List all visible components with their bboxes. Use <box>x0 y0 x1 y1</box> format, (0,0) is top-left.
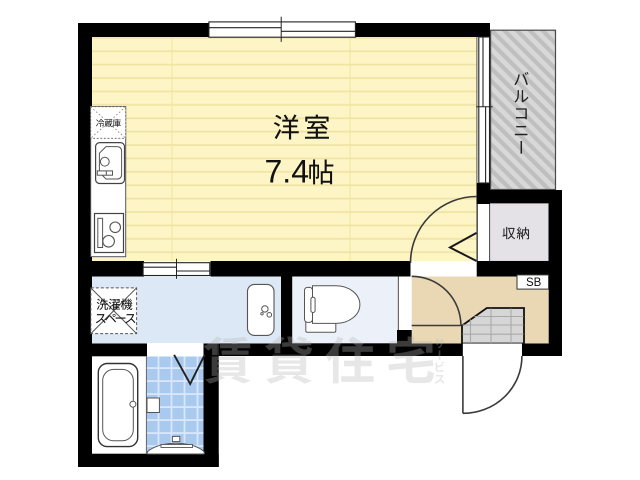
svg-text:7.4: 7.4 <box>265 154 309 190</box>
svg-text:SB: SB <box>526 277 542 289</box>
